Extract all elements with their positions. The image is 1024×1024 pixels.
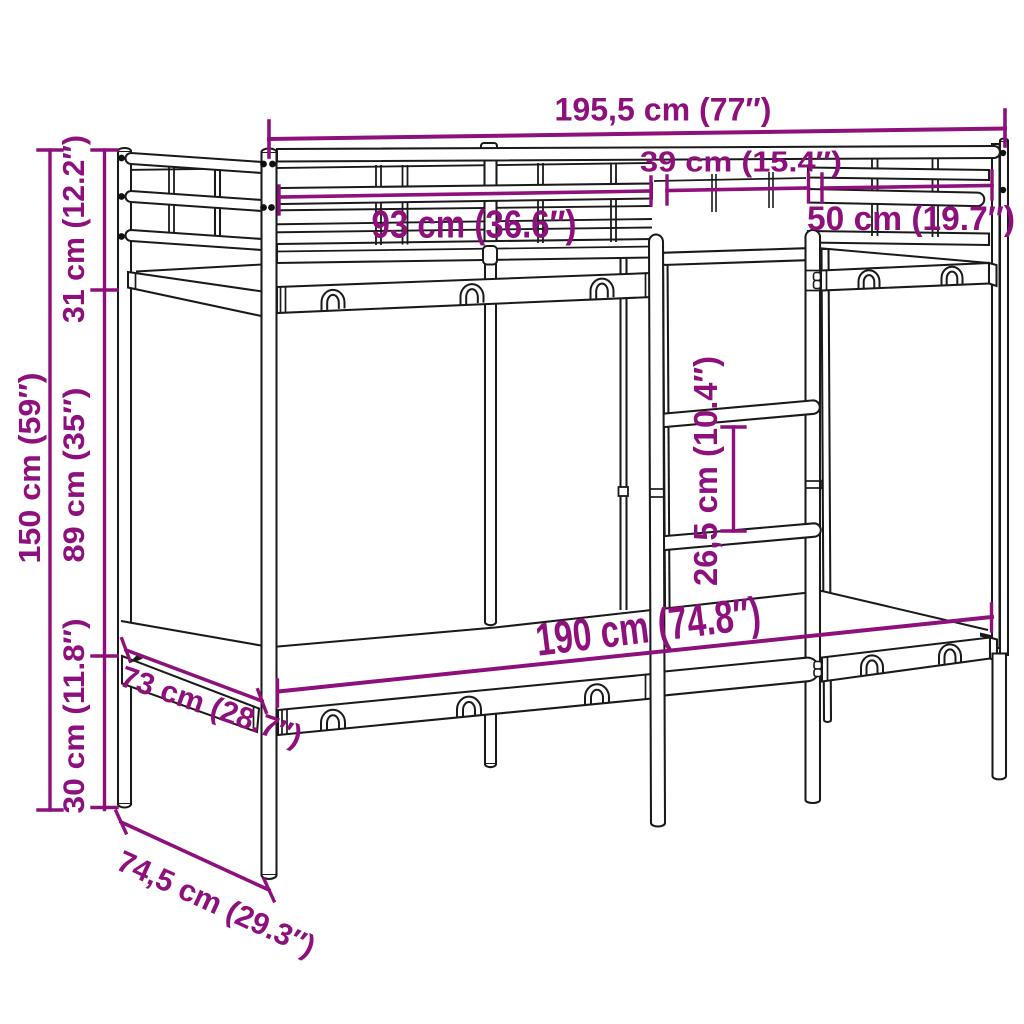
svg-text:89 cm (35″): 89 cm (35″) (58, 388, 91, 563)
svg-text:26,5 cm (10.4″): 26,5 cm (10.4″) (687, 356, 724, 586)
svg-text:195,5 cm (77″): 195,5 cm (77″) (555, 92, 772, 128)
svg-text:50 cm (19.7″): 50 cm (19.7″) (807, 200, 1015, 238)
svg-text:39 cm (15.4″): 39 cm (15.4″) (640, 147, 842, 179)
svg-text:31 cm (12.2″): 31 cm (12.2″) (57, 135, 91, 323)
svg-text:30 cm (11.8″): 30 cm (11.8″) (58, 619, 91, 814)
svg-text:150 cm (59″): 150 cm (59″) (12, 373, 47, 564)
svg-text:93 cm (36.6″): 93 cm (36.6″) (372, 204, 577, 247)
